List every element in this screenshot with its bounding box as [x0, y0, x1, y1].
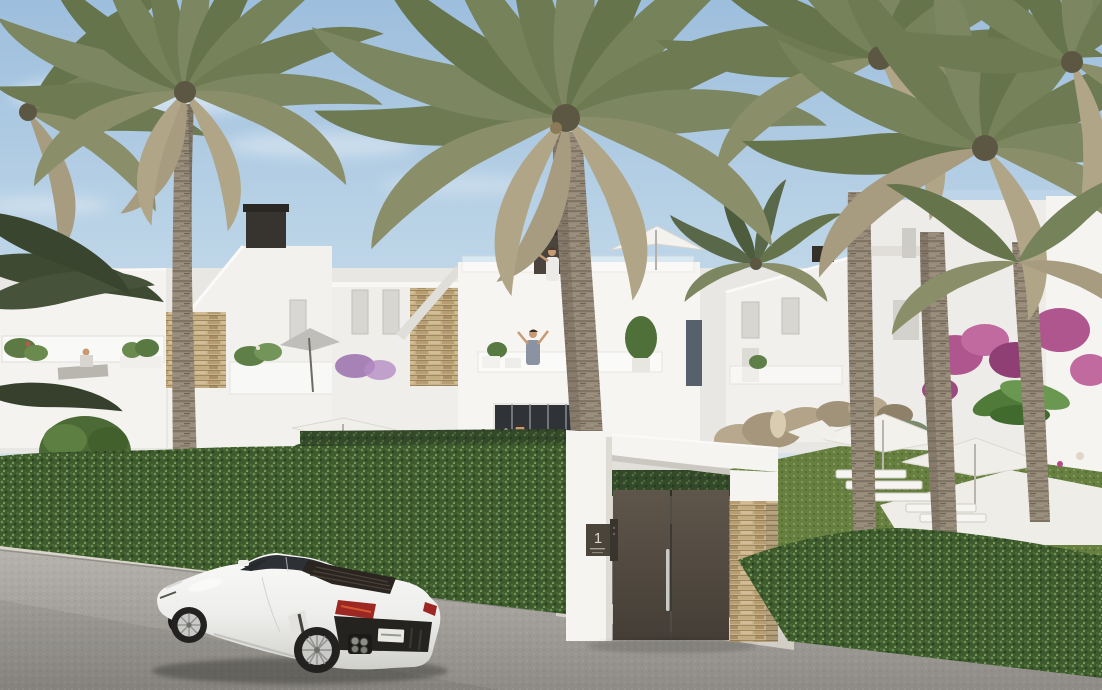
- exhaust-tip: [351, 637, 359, 645]
- shuttered-window: [782, 298, 799, 334]
- gate-door-left[interactable]: [613, 490, 670, 640]
- rear-wheel: [294, 627, 340, 673]
- plaque-small-text-line: [592, 552, 603, 553]
- chimney: [246, 208, 286, 248]
- shuttered-window: [383, 290, 399, 334]
- tall-plant: [625, 316, 657, 360]
- gate-frame-right-post: [730, 470, 778, 504]
- gate-plaque: 1: [586, 524, 610, 556]
- scene-canvas: 1: [0, 0, 1102, 690]
- pampas-grass: [770, 410, 786, 438]
- shuttered-window: [742, 302, 759, 338]
- terrace-plant: [135, 339, 159, 357]
- entrance-gate: 1: [566, 431, 778, 653]
- intercom-button[interactable]: [613, 533, 615, 535]
- wheel-hub: [186, 622, 191, 627]
- intercom-button[interactable]: [613, 527, 615, 529]
- front-wheel: [171, 607, 207, 643]
- shuttered-window: [352, 290, 368, 334]
- door-handle[interactable]: [666, 549, 670, 611]
- chimney-cap: [243, 204, 289, 212]
- exhaust-tip: [351, 645, 358, 652]
- house-number: 1: [594, 530, 602, 547]
- terrace-plant: [24, 345, 48, 361]
- stone-accent-column: [410, 288, 462, 386]
- exhaust-tip: [360, 638, 368, 646]
- side-mirror: [238, 560, 249, 566]
- gate-shadow: [587, 639, 757, 653]
- flower: [26, 342, 31, 347]
- plant-pot: [632, 358, 650, 372]
- property-render-image: 1: [0, 0, 1102, 690]
- intercom-panel[interactable]: [610, 519, 618, 561]
- exhaust-tip: [360, 646, 367, 653]
- person-left-terrace: [83, 349, 90, 356]
- purple-plant: [364, 360, 396, 380]
- terrace-chair: [482, 356, 500, 368]
- balcony-rail: [730, 366, 842, 384]
- plaque-small-text-line: [590, 548, 605, 549]
- date-cluster: [550, 122, 562, 134]
- balcony-plant: [254, 343, 282, 361]
- gate-door-right[interactable]: [672, 490, 729, 640]
- balcony-plant: [749, 355, 767, 369]
- flower: [256, 346, 260, 350]
- potted-plant: [487, 342, 507, 358]
- planter-box: [120, 356, 162, 368]
- gate-doors[interactable]: [613, 490, 729, 640]
- terrace-chair: [505, 358, 521, 368]
- person-left-terrace-body: [80, 355, 93, 367]
- louver-window: [686, 320, 702, 386]
- wheel-hub: [314, 647, 320, 653]
